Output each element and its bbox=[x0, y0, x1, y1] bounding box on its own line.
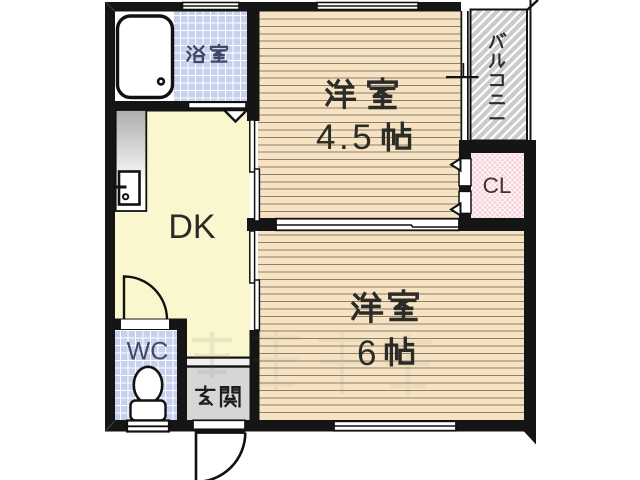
svg-text:WC: WC bbox=[127, 338, 169, 366]
svg-text:4.5: 4.5 bbox=[316, 118, 375, 157]
svg-text:6: 6 bbox=[357, 334, 376, 373]
svg-text:CL: CL bbox=[483, 173, 512, 198]
svg-text:DK: DK bbox=[168, 208, 216, 246]
